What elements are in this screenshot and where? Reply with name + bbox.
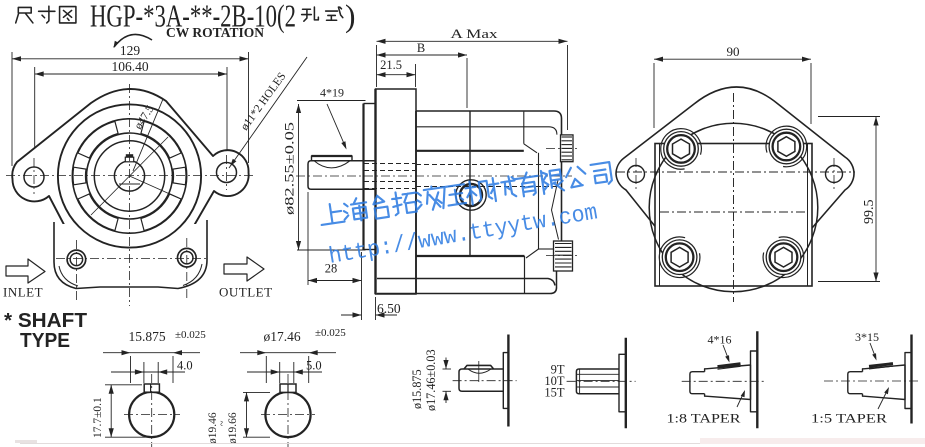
svg-text:106.40: 106.40 xyxy=(111,59,148,74)
svg-text:±0.025: ±0.025 xyxy=(315,327,346,339)
svg-text:4.0: 4.0 xyxy=(177,359,193,373)
svg-text:A Max: A Max xyxy=(451,27,499,41)
svg-text:17.7±0.1: 17.7±0.1 xyxy=(92,397,104,438)
svg-text:4*16: 4*16 xyxy=(708,333,732,347)
svg-text:5.0: 5.0 xyxy=(306,359,322,373)
svg-text:B: B xyxy=(417,41,425,55)
svg-text:ø15.875: ø15.875 xyxy=(410,369,424,409)
svg-text:* SHAFT: * SHAFT xyxy=(4,310,87,332)
svg-text:1:8 TAPER: 1:8 TAPER xyxy=(667,411,741,426)
svg-text:ø82.55±0.05: ø82.55±0.05 xyxy=(283,122,297,215)
svg-text:ø17.46: ø17.46 xyxy=(264,329,301,344)
svg-text:99.5: 99.5 xyxy=(862,200,877,225)
svg-text:): ) xyxy=(345,0,356,34)
svg-text:TYPE: TYPE xyxy=(20,330,70,352)
svg-text:15.875: 15.875 xyxy=(129,329,166,344)
svg-text:CW ROTATION: CW ROTATION xyxy=(166,25,264,40)
svg-text:90: 90 xyxy=(727,44,740,59)
svg-text:3*15: 3*15 xyxy=(855,330,879,344)
svg-text:~: ~ xyxy=(217,420,228,426)
svg-text:21.5: 21.5 xyxy=(380,58,402,72)
svg-text:INLET: INLET xyxy=(3,285,43,300)
svg-text:ø19.66: ø19.66 xyxy=(227,412,239,444)
svg-text:6.50: 6.50 xyxy=(377,301,401,316)
svg-text:129: 129 xyxy=(120,43,141,58)
svg-text:ø19.46: ø19.46 xyxy=(207,412,219,444)
svg-text:4*19: 4*19 xyxy=(320,86,344,100)
svg-text:±0.025: ±0.025 xyxy=(175,329,206,341)
svg-text:ø17.46±0.03: ø17.46±0.03 xyxy=(424,349,438,411)
svg-text:1:5 TAPER: 1:5 TAPER xyxy=(811,411,887,426)
svg-text:15T: 15T xyxy=(544,386,565,400)
svg-text:OUTLET: OUTLET xyxy=(219,285,273,300)
